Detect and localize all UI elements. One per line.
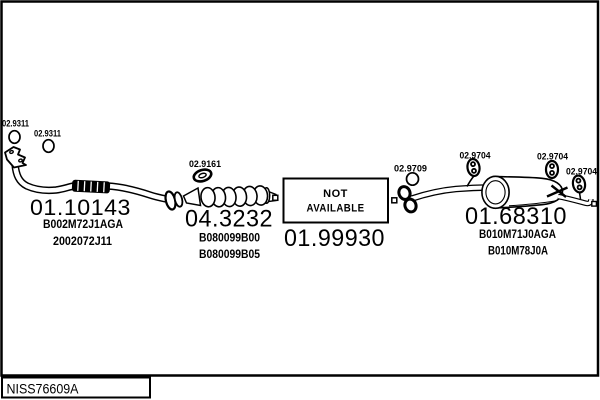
joint-square-left <box>273 195 278 200</box>
not-available-box <box>284 179 389 223</box>
rear-silencer-number-2: B010M78J0A <box>488 246 548 258</box>
gasket-ring-1-label: 02.9311 <box>2 119 30 130</box>
not-available-line2: AVAILABLE <box>307 203 365 215</box>
not-available-line1: NOT <box>323 188 348 200</box>
rear-silencer-code: 01.68310 <box>465 203 567 230</box>
gasket-ring-2-label: 02.9311 <box>34 129 62 140</box>
catalyst-code: 04.3232 <box>185 206 273 233</box>
rear-silencer-number-1: B010M71J0AGA <box>479 229 556 241</box>
hanger-2-icon <box>546 161 558 178</box>
catalyst-drawing <box>184 185 277 207</box>
tail-square <box>592 202 597 207</box>
mid-pipe-code: 01.99930 <box>284 225 385 252</box>
catalyst-number-1: B080099B00 <box>199 233 260 245</box>
front-pipe-number-1: B002M72J1AGA <box>43 219 123 231</box>
cat-gasket-label: 02.9161 <box>189 159 222 170</box>
diagram-ref-label: NISS76609A <box>7 382 79 397</box>
catalyst-number-2: B080099B05 <box>199 249 261 261</box>
front-pipe-code: 01.10143 <box>30 195 131 220</box>
front-pipe-number-2: 2002072J11 <box>53 236 113 248</box>
hanger-1-label: 02.9704 <box>460 150 492 161</box>
flex-section <box>72 180 111 194</box>
joint-square-right <box>392 198 397 203</box>
hanger-3-label: 02.9704 <box>566 166 598 177</box>
rear-gasket-label: 02.9709 <box>394 164 427 175</box>
exhaust-parts-diagram: NISS76609A 02.9311 02.9311 <box>0 0 600 400</box>
hanger-2-label: 02.9704 <box>537 151 569 162</box>
